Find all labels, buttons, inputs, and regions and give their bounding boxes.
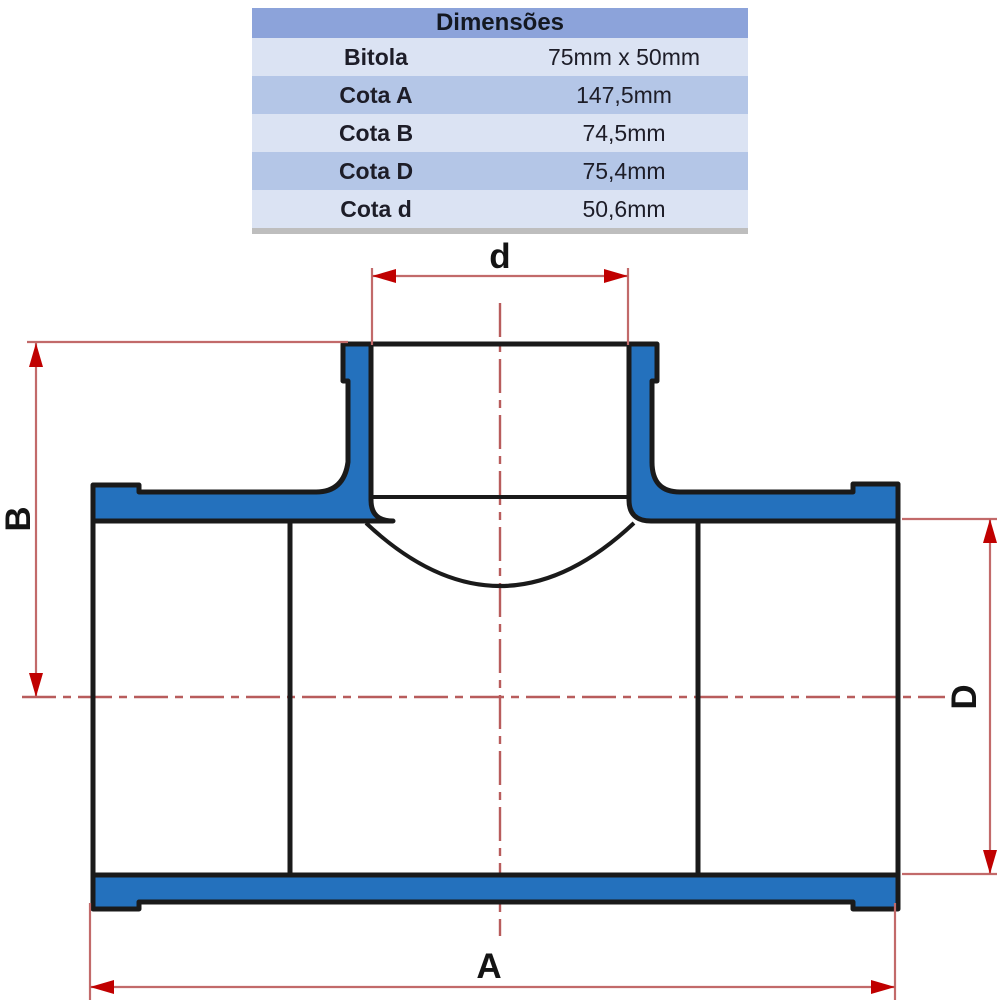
fitting-bottom-wall xyxy=(93,875,898,909)
table-row-label: Bitola xyxy=(252,38,500,76)
table-bottom-shadow xyxy=(252,228,748,234)
b-arrow-bottom xyxy=(29,673,43,697)
table-row-value: 50,6mm xyxy=(500,190,748,228)
fitting-top-right-wall xyxy=(629,344,898,521)
a-arrow-left xyxy=(90,980,114,994)
table-row-value: 74,5mm xyxy=(500,114,748,152)
table-row-value: 75mm x 50mm xyxy=(500,38,748,76)
b-arrow-top xyxy=(29,343,43,367)
table-row: Cota d 50,6mm xyxy=(252,190,748,228)
fitting-top-left-wall xyxy=(93,344,393,521)
table-row: Bitola 75mm x 50mm xyxy=(252,38,748,76)
a-arrow-right xyxy=(871,980,895,994)
table-row-label: Cota d xyxy=(252,190,500,228)
d-arrow-right xyxy=(604,269,628,283)
table-row: Cota A 147,5mm xyxy=(252,76,748,114)
table-row-value: 75,4mm xyxy=(500,152,748,190)
table-row-label: Cota B xyxy=(252,114,500,152)
table-row: Cota D 75,4mm xyxy=(252,152,748,190)
d-outer-arrow-top xyxy=(983,519,997,543)
dimension-label-a: A xyxy=(476,947,501,986)
d-outer-arrow-bottom xyxy=(983,850,997,874)
table-title: Dimensões xyxy=(252,8,748,38)
table-row-label: Cota D xyxy=(252,152,500,190)
table-row: Cota B 74,5mm xyxy=(252,114,748,152)
d-arrow-left xyxy=(372,269,396,283)
dimension-label-d: d xyxy=(489,237,510,276)
dimensions-table: Dimensões Bitola 75mm x 50mm Cota A 147,… xyxy=(252,8,748,234)
dimension-label-b: B xyxy=(0,506,38,531)
table-row-label: Cota A xyxy=(252,76,500,114)
dimension-label-D: D xyxy=(945,684,984,709)
table-row-value: 147,5mm xyxy=(500,76,748,114)
